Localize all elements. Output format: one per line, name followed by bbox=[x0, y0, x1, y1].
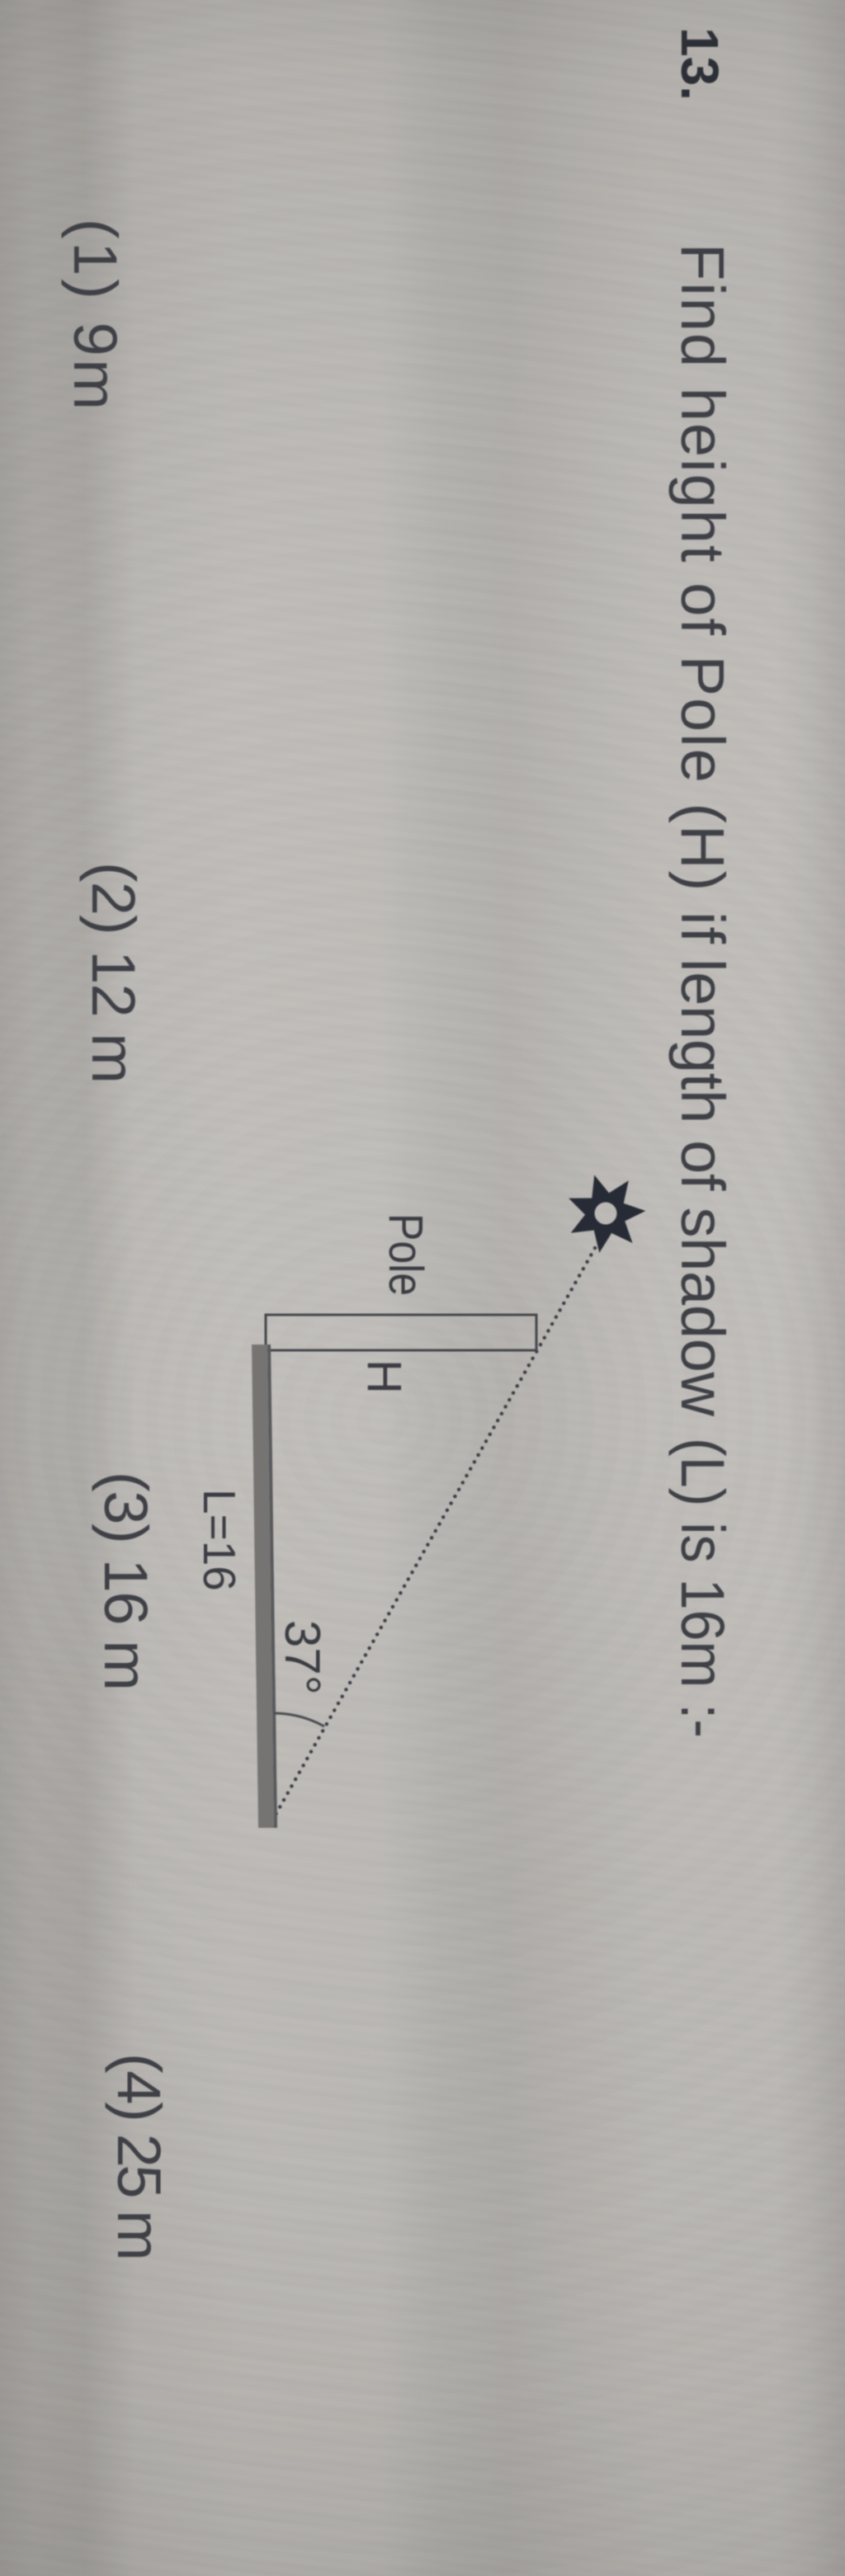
svg-text:H: H bbox=[357, 1359, 411, 1394]
svg-text:(L) is 16m :-: (L) is 16m :- bbox=[668, 1438, 737, 1738]
svg-text:L=16: L=16 bbox=[194, 1489, 245, 1591]
svg-text:37°: 37° bbox=[275, 1620, 330, 1695]
svg-text:(2) 12 m: (2) 12 m bbox=[79, 862, 148, 1084]
svg-text:(4) 25 m: (4) 25 m bbox=[105, 2053, 173, 2261]
svg-text:13.: 13. bbox=[670, 27, 729, 101]
svg-text:(1) 9m: (1) 9m bbox=[61, 219, 130, 410]
svg-text:Pole: Pole bbox=[379, 1213, 432, 1296]
svg-text:length of shadow: length of shadow bbox=[668, 958, 737, 1417]
svg-text:Find height of Pole (H) if: Find height of Pole (H) if bbox=[668, 243, 737, 944]
svg-text:(3) 16 m: (3) 16 m bbox=[92, 1472, 160, 1691]
